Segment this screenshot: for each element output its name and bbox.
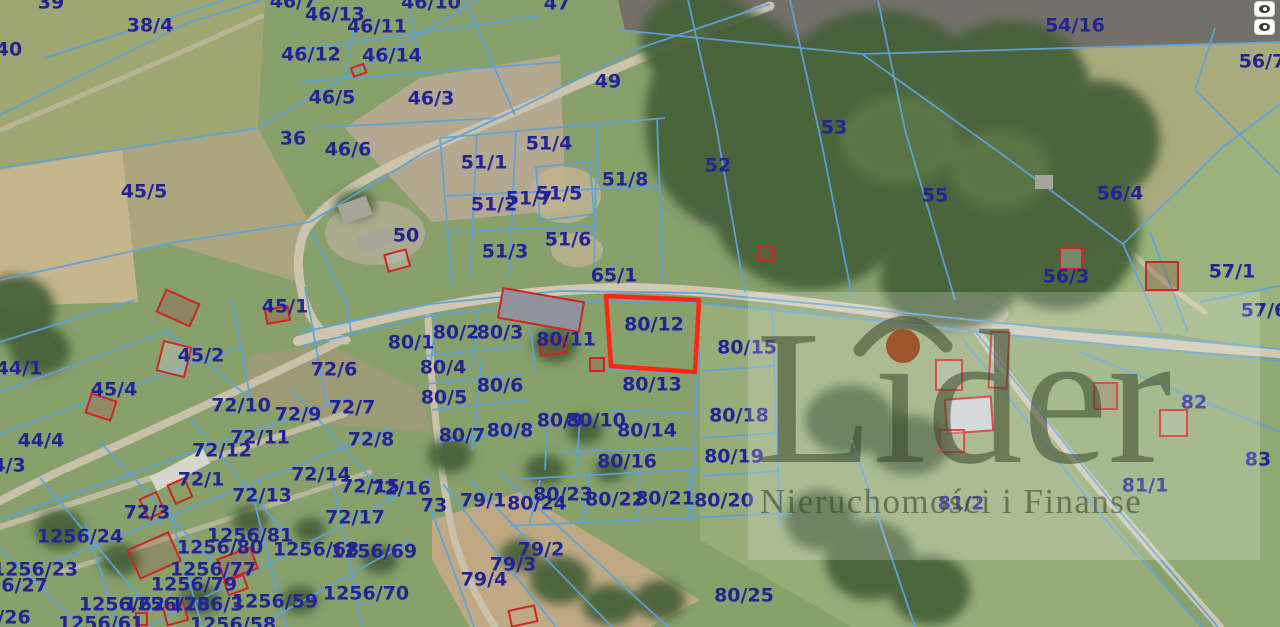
aerial-map — [0, 0, 1280, 627]
map-viewport[interactable]: 3938/44046/746/1346/1146/104746/1246/144… — [0, 0, 1280, 627]
map-controls — [1254, 1, 1275, 35]
layer-toggle-top[interactable] — [1254, 1, 1275, 17]
eye-icon — [1259, 5, 1270, 13]
eye-icon — [1259, 23, 1270, 31]
layer-toggle-bottom[interactable] — [1254, 19, 1275, 35]
highlighted-parcel[interactable] — [606, 296, 699, 372]
